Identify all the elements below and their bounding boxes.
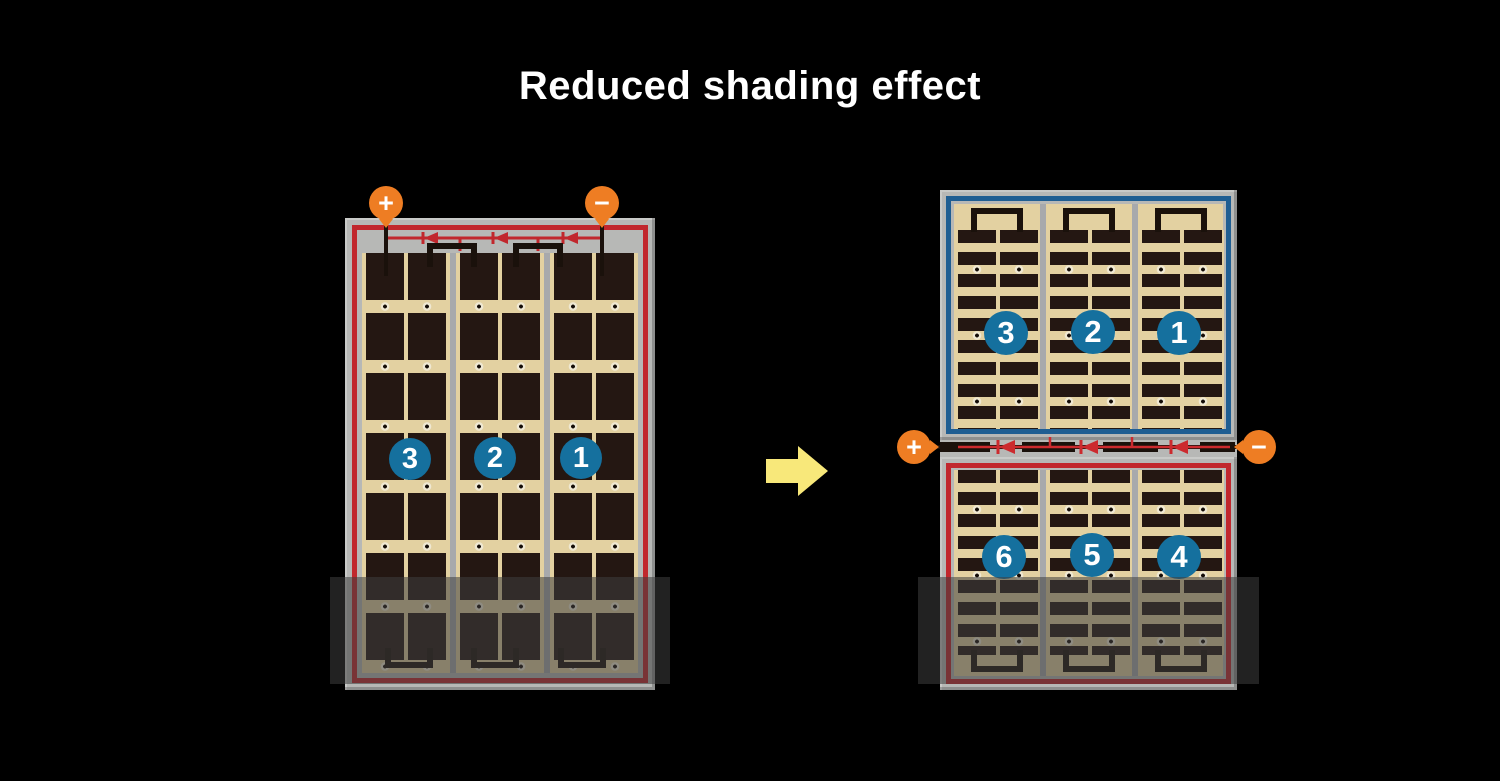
string-number-badge: 3 xyxy=(984,311,1028,355)
minus-terminal: − xyxy=(585,186,619,220)
shading-overlay xyxy=(918,577,1259,684)
string-number-badge: 3 xyxy=(389,438,431,480)
string-number-badge: 6 xyxy=(982,535,1026,579)
top-busbar xyxy=(427,243,477,267)
diode-icon xyxy=(1171,440,1188,454)
string-number-badge: 1 xyxy=(1157,311,1201,355)
diode-icon xyxy=(998,440,1015,454)
junction-diode-wire xyxy=(928,434,1250,460)
reduced-shading-diagram: Reduced shading effect xyxy=(0,0,1500,781)
diode-icon xyxy=(563,232,578,244)
bypass-diode-wire xyxy=(382,230,606,254)
diode-icon xyxy=(493,232,508,244)
plus-terminal: + xyxy=(369,186,403,220)
string-number-badge: 2 xyxy=(474,437,516,479)
top-busbar xyxy=(513,243,563,267)
arrow-right-icon xyxy=(766,446,828,496)
minus-terminal: − xyxy=(1242,430,1276,464)
string-number-badge: 5 xyxy=(1070,533,1114,577)
plus-terminal: + xyxy=(897,430,931,464)
diagram-title: Reduced shading effect xyxy=(0,64,1500,109)
string-number-badge: 4 xyxy=(1157,535,1201,579)
shading-overlay xyxy=(330,577,670,684)
diode-icon xyxy=(1081,440,1098,454)
string-number-badge: 1 xyxy=(560,437,602,479)
string-number-badge: 2 xyxy=(1071,310,1115,354)
